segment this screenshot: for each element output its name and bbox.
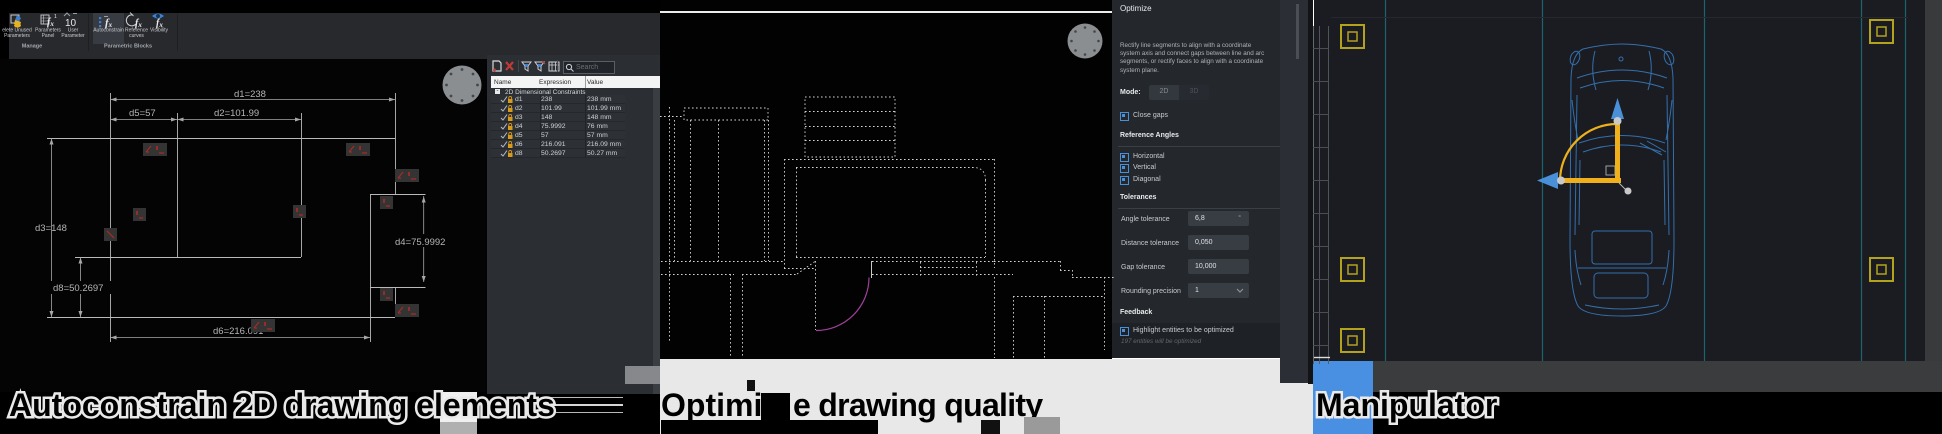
svg-text:Visibility: Visibility	[150, 28, 168, 34]
svg-text:d2=101.99: d2=101.99	[214, 108, 259, 119]
svg-text:d5=57: d5=57	[129, 108, 156, 119]
svg-text:d4=75.9992: d4=75.9992	[395, 237, 445, 248]
svg-text:Manage: Manage	[22, 44, 42, 50]
svg-text:d3=148: d3=148	[35, 223, 67, 234]
svg-text:Parametric Blocks: Parametric Blocks	[104, 44, 152, 50]
svg-text:Panel: Panel	[42, 33, 55, 39]
svg-text:Parameter: Parameter	[61, 33, 85, 39]
svg-text:Autoconstrain: Autoconstrain	[93, 28, 124, 34]
svg-text:d8=50.2697: d8=50.2697	[53, 283, 103, 294]
svg-text:d1=238: d1=238	[234, 89, 266, 100]
svg-text:curves: curves	[129, 33, 144, 39]
svg-text:1: 1	[54, 14, 57, 20]
svg-text:Parameters: Parameters	[4, 33, 30, 39]
